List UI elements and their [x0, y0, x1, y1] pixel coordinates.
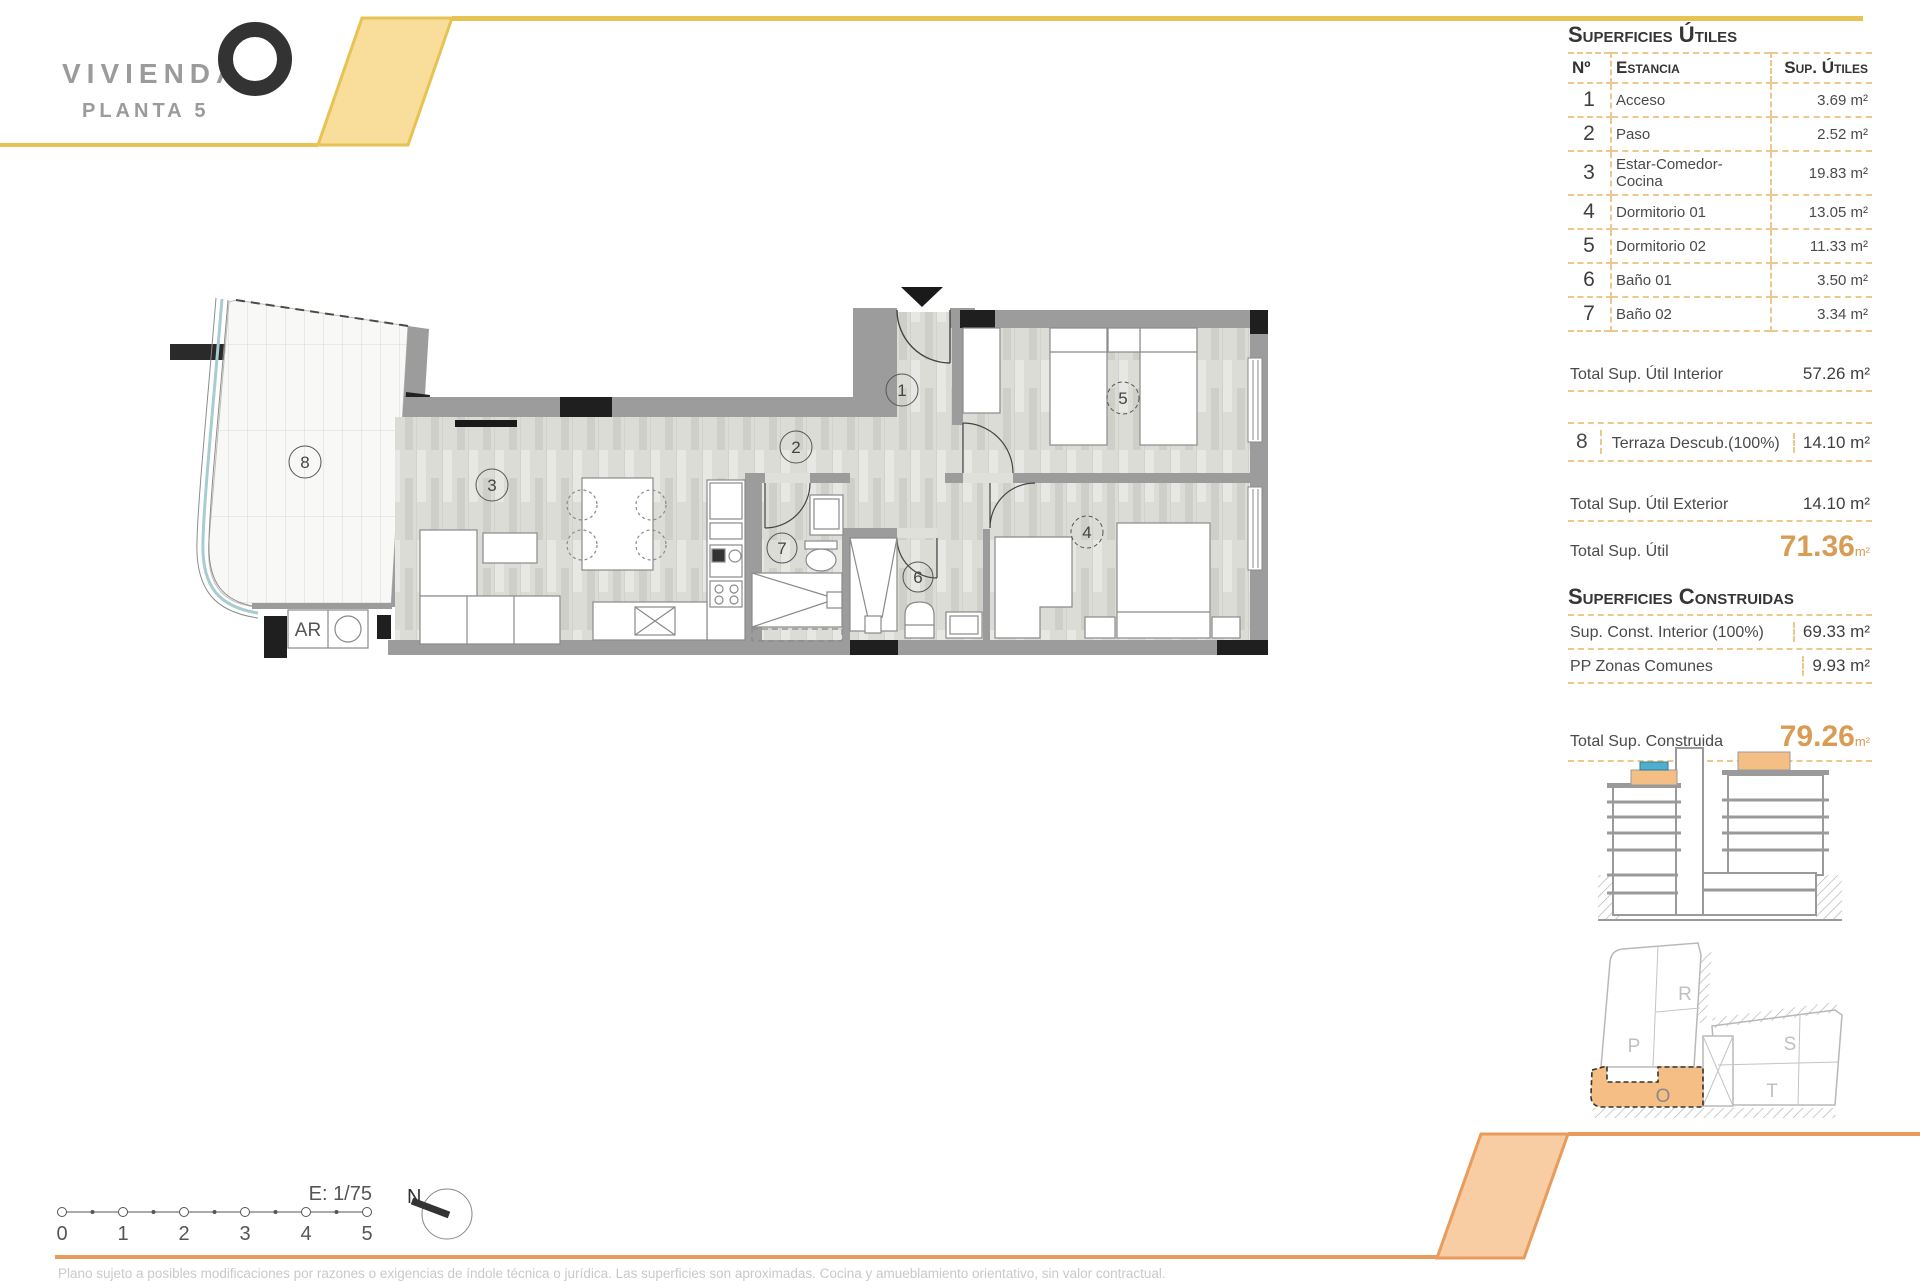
built-table: Sup. Const. Interior (100%) 69.33 m² PP …	[1568, 614, 1872, 684]
row-no: 7	[1568, 297, 1611, 331]
brand-o-logo	[218, 22, 292, 96]
svg-text:1: 1	[897, 381, 906, 400]
table-row: 7 Baño 02 3.34 m²	[1568, 297, 1872, 331]
ar-unit: AR	[288, 610, 368, 648]
row-room: Paso	[1611, 117, 1771, 151]
svg-text:4: 4	[1082, 523, 1091, 542]
entrance-marker	[901, 287, 943, 307]
col-no: Nº	[1568, 53, 1611, 83]
row-area: 3.50 m²	[1771, 263, 1872, 297]
footer-rule-top	[1568, 1132, 1920, 1136]
row-area: 2.52 m²	[1771, 117, 1872, 151]
row-no: 5	[1568, 229, 1611, 263]
row-no: 4	[1568, 195, 1611, 229]
total-util: Total Sup. Útil 71.36m²	[1568, 524, 1872, 570]
col-room: Estancia	[1611, 53, 1771, 83]
block-o-label: O	[1656, 1086, 1671, 1107]
svg-text:3: 3	[487, 476, 496, 495]
built-table-title: Superficies Construidas	[1568, 584, 1872, 610]
svg-text:R: R	[1678, 984, 1692, 1005]
footer-rule-left	[55, 1255, 1524, 1259]
building-section	[1560, 735, 1870, 930]
table-row: 2 Paso 2.52 m²	[1568, 117, 1872, 151]
svg-text:7: 7	[777, 539, 786, 558]
total-interior: Total Sup. Útil Interior 57.26 m²	[1568, 358, 1872, 392]
table-row: 4 Dormitorio 01 13.05 m²	[1568, 195, 1872, 229]
svg-text:P: P	[1628, 1036, 1641, 1057]
svg-text:T: T	[1766, 1081, 1778, 1102]
scale-ticks: 0 1 2 3 4 5	[56, 1223, 372, 1245]
row-room: Estar-Comedor-Cocina	[1611, 151, 1771, 195]
table-row: 6 Baño 01 3.50 m²	[1568, 263, 1872, 297]
row-area: 3.34 m²	[1771, 297, 1872, 331]
svg-text:5: 5	[361, 1223, 372, 1245]
site-plan: P R S T O	[1530, 935, 1890, 1130]
row-no: 2	[1568, 117, 1611, 151]
svg-text:6: 6	[913, 568, 922, 587]
svg-text:S: S	[1784, 1034, 1797, 1055]
areas-panel: Superficies Útiles Nº Estancia Sup. Útil…	[1568, 22, 1872, 762]
scale-label: E: 1/75	[309, 1183, 372, 1205]
built-row: Sup. Const. Interior (100%) 69.33 m²	[1568, 616, 1872, 650]
pool	[1640, 762, 1668, 770]
header-parallelogram	[300, 10, 470, 150]
table-row: 3 Estar-Comedor-Cocina 19.83 m²	[1568, 151, 1872, 195]
row-area: 3.69 m²	[1771, 83, 1872, 117]
row-room: Dormitorio 01	[1611, 195, 1771, 229]
highlight-floor-left	[1631, 770, 1677, 785]
highlight-floor-right	[1738, 752, 1790, 770]
total-exterior: Total Sup. Útil Exterior 14.10 m²	[1568, 488, 1872, 522]
svg-text:0: 0	[56, 1223, 67, 1245]
lintel	[455, 420, 517, 427]
svg-text:2: 2	[791, 438, 800, 457]
scale-bar: 0 1 2 3 4 5 E: 1/75 N	[40, 1180, 500, 1250]
svg-text:8: 8	[300, 453, 309, 472]
col-area: Sup. Útiles	[1771, 53, 1872, 83]
row-no: 3	[1568, 151, 1611, 195]
row-area: 13.05 m²	[1771, 195, 1872, 229]
brand-name: VIVIENDA	[62, 58, 242, 90]
row-area: 11.33 m²	[1771, 229, 1872, 263]
ground-hatch	[1816, 875, 1842, 920]
block-o-highlight	[1591, 1066, 1703, 1107]
areas-table: Nº Estancia Sup. Útiles 1 Acceso 3.69 m²…	[1568, 52, 1872, 332]
row-room: Baño 02	[1611, 297, 1771, 331]
svg-text:2: 2	[178, 1223, 189, 1245]
row-room: Baño 01	[1611, 263, 1771, 297]
north-arrow: N	[407, 1186, 472, 1239]
svg-text:4: 4	[300, 1223, 311, 1245]
footer-parallelogram	[1425, 1128, 1585, 1264]
floor-plan: AR 1 2 3 4 5 6 7 8	[160, 235, 1290, 675]
header-rule-left	[0, 143, 318, 147]
floor-label: PLANTA 5	[82, 100, 210, 123]
svg-text:1: 1	[117, 1223, 128, 1245]
table-row: 5 Dormitorio 02 11.33 m²	[1568, 229, 1872, 263]
svg-text:3: 3	[239, 1223, 250, 1245]
terrace-row: 8 Terraza Descub.(100%) 14.10 m²	[1568, 422, 1872, 462]
row-no: 6	[1568, 263, 1611, 297]
built-row: PP Zonas Comunes 9.93 m²	[1568, 650, 1872, 682]
header-rule-top	[452, 16, 1863, 21]
ar-label: AR	[295, 620, 321, 641]
row-room: Acceso	[1611, 83, 1771, 117]
areas-table-title: Superficies Útiles	[1568, 22, 1872, 48]
row-room: Dormitorio 02	[1611, 229, 1771, 263]
svg-text:5: 5	[1118, 389, 1127, 408]
row-no: 1	[1568, 83, 1611, 117]
disclaimer-text: Plano sujeto a posibles modificaciones p…	[58, 1266, 1166, 1281]
table-row: 1 Acceso 3.69 m²	[1568, 83, 1872, 117]
row-area: 19.83 m²	[1771, 151, 1872, 195]
